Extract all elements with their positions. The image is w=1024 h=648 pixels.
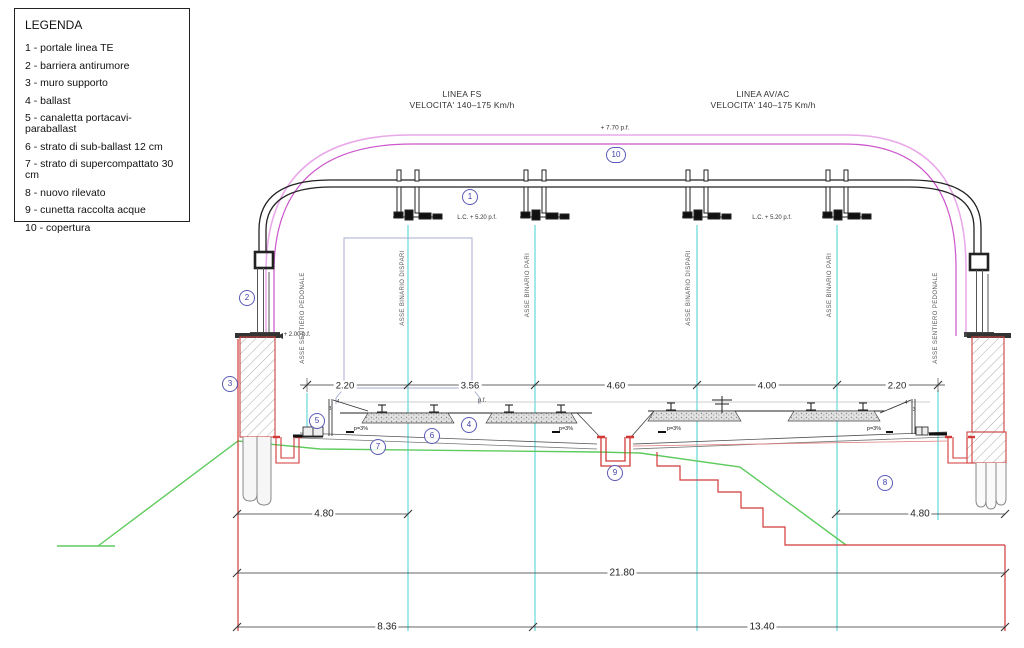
marker-canaletta: 5 xyxy=(309,413,325,429)
subballast-layers xyxy=(300,432,947,449)
axis-label-binario-dispari-fs: ASSE BINARIO DISPARI xyxy=(400,250,406,326)
slope-label: p=3% xyxy=(354,426,368,432)
legend-item: 8 - nuovo rilevato xyxy=(25,188,179,199)
dim-wall-offset-left: 4.80 xyxy=(312,509,335,520)
dim-track-1: 2.20 xyxy=(334,381,357,392)
catenary-level-left: L.C. + 5.20 p.f. xyxy=(457,215,497,221)
marker-portale: 1 xyxy=(462,189,478,205)
dim-wall-offset-right: 4.80 xyxy=(908,509,931,520)
marker-ballast: 4 xyxy=(461,417,477,433)
legend-item: 5 - canaletta portacavi-paraballast xyxy=(25,113,179,135)
catenary-level-right: L.C. + 5.20 p.f. xyxy=(752,215,792,221)
dim-bottom-left: 8.36 xyxy=(375,622,398,633)
marker-supercompattato: 7 xyxy=(370,439,386,455)
terrain-line xyxy=(57,441,846,546)
dim-bottom-right: 13.40 xyxy=(747,622,776,633)
wall-top-level: + 2.00 p.f. xyxy=(284,332,311,338)
axis-label-binario-pari-av: ASSE BINARIO PARI xyxy=(827,253,833,317)
roof-level-label: + 7.70 p.f. xyxy=(600,125,629,132)
legend-item: 7 - strato di supercompattato 30 cm xyxy=(25,159,179,181)
marker-cunetta: 9 xyxy=(607,465,623,481)
marker-rilevato: 8 xyxy=(877,475,893,491)
marker-muro: 3 xyxy=(222,376,238,392)
slope-ratio-label: 4 xyxy=(905,400,908,406)
axis-label-binario-dispari-av: ASSE BINARIO DISPARI xyxy=(686,250,692,326)
linea-av-name: LINEA AV/AC xyxy=(710,89,815,100)
linea-av-speed: VELOCITA' 140–175 Km/h xyxy=(710,100,815,111)
legend-item: 9 - cunetta raccolta acque xyxy=(25,205,179,216)
legend-item: 10 - copertura xyxy=(25,223,179,234)
rail-plane-label: p.f. xyxy=(478,398,486,404)
slope-ratio-label: 3 xyxy=(329,406,332,412)
slope-label: p=3% xyxy=(559,426,573,432)
axis-label-sentiero-right: ASSE SENTIERO PEDONALE xyxy=(933,272,939,364)
linea-fs-title: LINEA FS VELOCITA' 140–175 Km/h xyxy=(409,89,514,111)
section-drawing: LEGENDA 1 - portale linea TE 2 - barrier… xyxy=(0,0,1024,648)
linea-fs-speed: VELOCITA' 140–175 Km/h xyxy=(409,100,514,111)
legend-item: 3 - muro supporto xyxy=(25,78,179,89)
legend-box: LEGENDA 1 - portale linea TE 2 - barrier… xyxy=(14,8,190,222)
dim-total-width: 21.80 xyxy=(607,568,636,579)
signal-mast xyxy=(712,396,732,413)
axis-label-binario-pari-fs: ASSE BINARIO PARI xyxy=(525,253,531,317)
axis-label-sentiero-left: ASSE SENTIERO PEDONALE xyxy=(300,272,306,364)
linea-fs-name: LINEA FS xyxy=(409,89,514,100)
dim-track-4: 4.00 xyxy=(756,381,779,392)
slope-ratio-label: 3 xyxy=(913,407,916,413)
dim-track-5: 2.20 xyxy=(886,381,909,392)
slope-label: p=3% xyxy=(867,426,881,432)
legend-title: LEGENDA xyxy=(25,18,179,32)
legend-item: 1 - portale linea TE xyxy=(25,43,179,54)
legend-item: 2 - barriera antirumore xyxy=(25,61,179,72)
te-portal-frame xyxy=(255,180,988,270)
marker-barriera: 2 xyxy=(239,290,255,306)
legend-item: 6 - strato di sub-ballast 12 cm xyxy=(25,142,179,153)
noise-barrier xyxy=(250,268,994,337)
dim-track-2: 3.56 xyxy=(459,381,482,392)
slope-label: p=3% xyxy=(667,426,681,432)
marker-subballast: 6 xyxy=(424,428,440,444)
legend-item: 4 - ballast xyxy=(25,96,179,107)
slope-ratio-label: 4 xyxy=(337,399,340,405)
marker-copertura: 10 xyxy=(606,147,626,163)
dim-track-3: 4.60 xyxy=(605,381,628,392)
copertura-cover-lines xyxy=(266,135,966,336)
linea-av-title: LINEA AV/AC VELOCITA' 140–175 Km/h xyxy=(710,89,815,111)
support-walls xyxy=(235,333,1011,509)
